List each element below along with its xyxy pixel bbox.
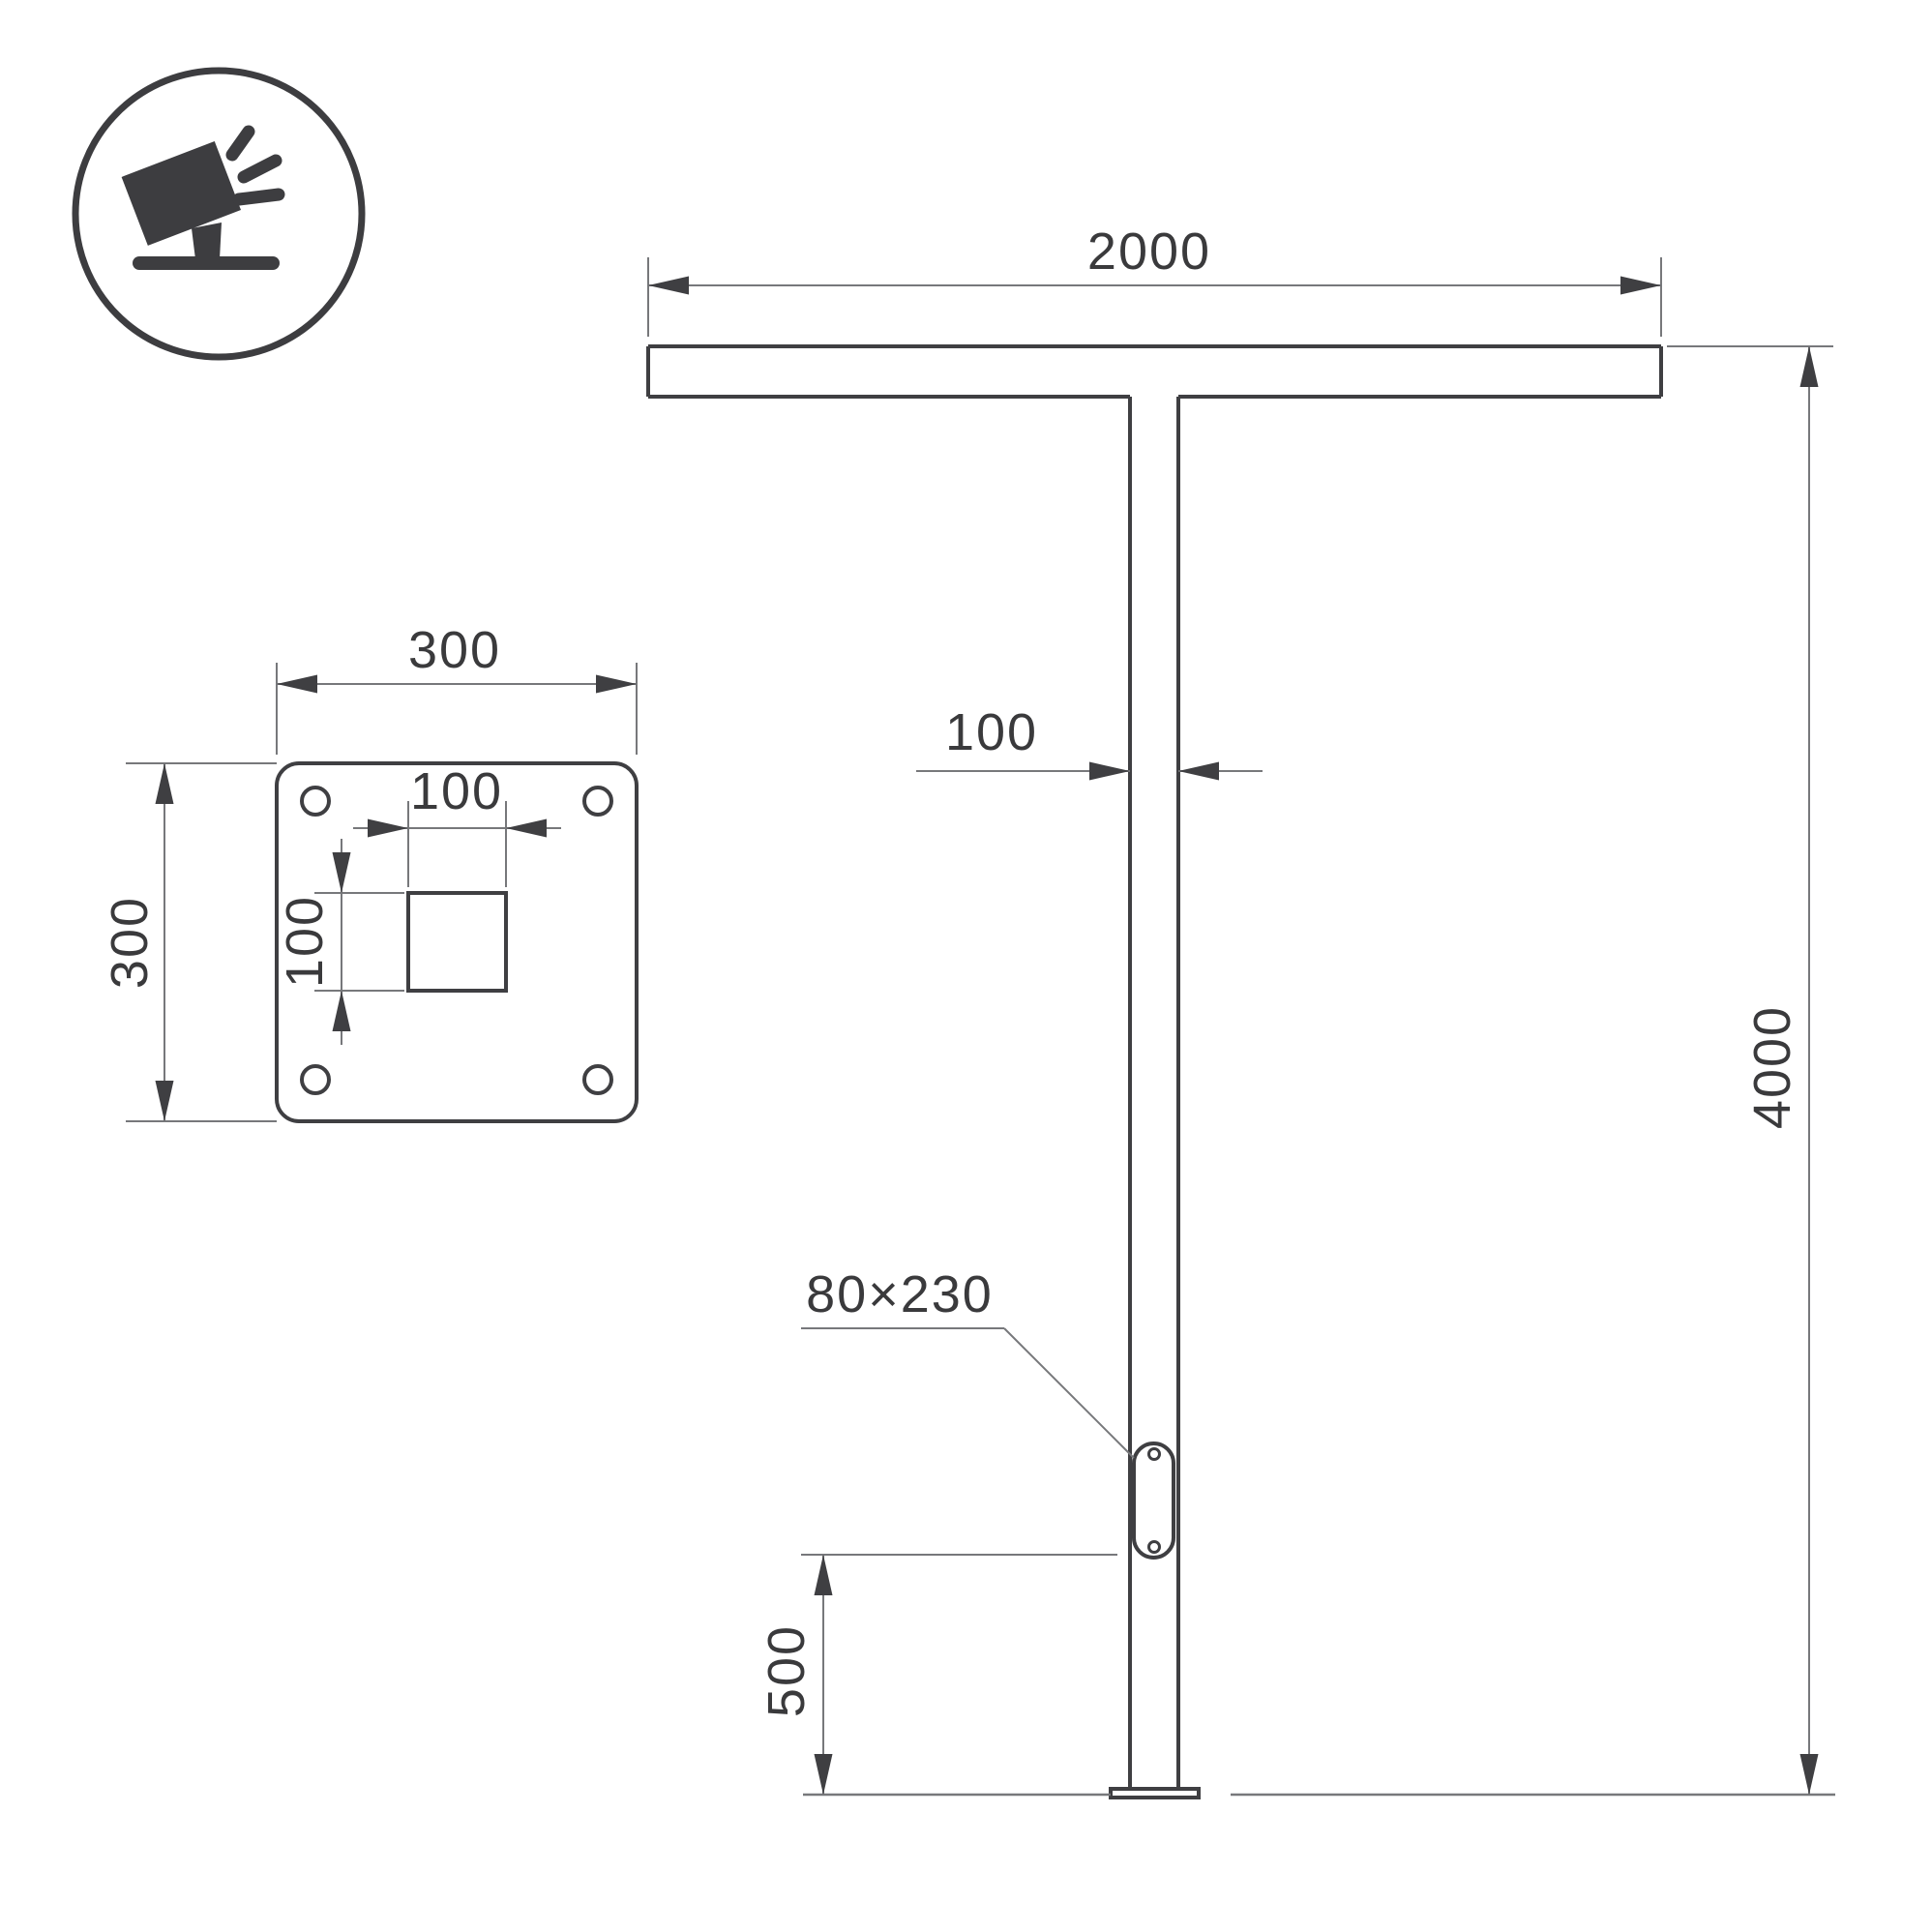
hatch-size-callout: 80×230: [801, 1265, 1134, 1458]
dim-pole-width: 100: [916, 703, 1263, 781]
arrow-up-icon: [815, 1555, 833, 1595]
base-plate-view: 300 300 100 100: [101, 621, 637, 1121]
floodlight-stand: [192, 223, 222, 259]
light-ray-icon: [239, 194, 279, 199]
bottom-flange: [1111, 1789, 1199, 1798]
bolt-hole: [302, 1066, 329, 1093]
dim-label-cutout-width: 100: [410, 762, 503, 820]
hatch-screw: [1149, 1449, 1160, 1460]
dim-arm-length: 2000: [648, 223, 1661, 337]
dim-label-hatch-size: 80×230: [806, 1265, 994, 1323]
dim-label-cutout-height: 100: [276, 895, 334, 988]
floodlight-head: [122, 141, 241, 246]
arrow-down-icon: [333, 852, 351, 893]
arrow-down-icon: [156, 1081, 174, 1121]
hatch-screw: [1149, 1542, 1160, 1553]
arrow-down-icon: [815, 1754, 833, 1795]
arrow-down-icon: [1800, 1754, 1819, 1795]
pole-front-view: 2000 100 80×230 500: [648, 223, 1835, 1798]
bolt-hole: [584, 788, 611, 815]
dim-cutout-width: 100: [353, 762, 561, 887]
arrow-right-icon: [368, 819, 408, 838]
drawing-canvas: 300 300 100 100: [0, 0, 1932, 1932]
arrow-up-icon: [1800, 346, 1819, 387]
light-ray-icon: [232, 132, 249, 155]
dim-label-arm-length: 2000: [1087, 223, 1211, 281]
dim-plate-width: 300: [277, 621, 637, 755]
bolt-hole: [302, 788, 329, 815]
pole-cutout-square: [408, 893, 506, 991]
dim-pole-height: 4000: [1667, 346, 1833, 1795]
arrow-right-icon: [596, 675, 637, 694]
arrow-right-icon: [1620, 277, 1661, 295]
dim-cutout-height: 100: [276, 839, 404, 1045]
leader-line: [1004, 1328, 1134, 1458]
dim-plate-height: 300: [101, 763, 277, 1121]
arrow-left-icon: [277, 675, 317, 694]
technical-drawing: 300 300 100 100: [0, 0, 1932, 1932]
luminaire-arm: [648, 346, 1661, 397]
floodlight-base: [133, 256, 280, 270]
light-ray-icon: [244, 161, 276, 177]
arrow-left-icon: [1178, 762, 1219, 781]
floodlight-icon: [75, 71, 362, 357]
pole-shaft: [1130, 397, 1178, 1789]
dim-label-plate-height: 300: [101, 896, 159, 989]
dim-hatch-height: 500: [758, 1555, 1117, 1795]
bolt-hole: [584, 1066, 611, 1093]
access-hatch: [1134, 1443, 1174, 1558]
dim-label-plate-width: 300: [408, 621, 501, 679]
arrow-left-icon: [648, 277, 689, 295]
floodlight-body: [122, 141, 241, 246]
arrow-up-icon: [156, 763, 174, 804]
arrow-up-icon: [333, 991, 351, 1031]
dim-label-pole-height: 4000: [1743, 1005, 1801, 1129]
arrow-left-icon: [506, 819, 547, 838]
arrow-right-icon: [1089, 762, 1130, 781]
dim-label-pole-width: 100: [945, 703, 1038, 761]
dim-label-hatch-height: 500: [758, 1624, 816, 1717]
